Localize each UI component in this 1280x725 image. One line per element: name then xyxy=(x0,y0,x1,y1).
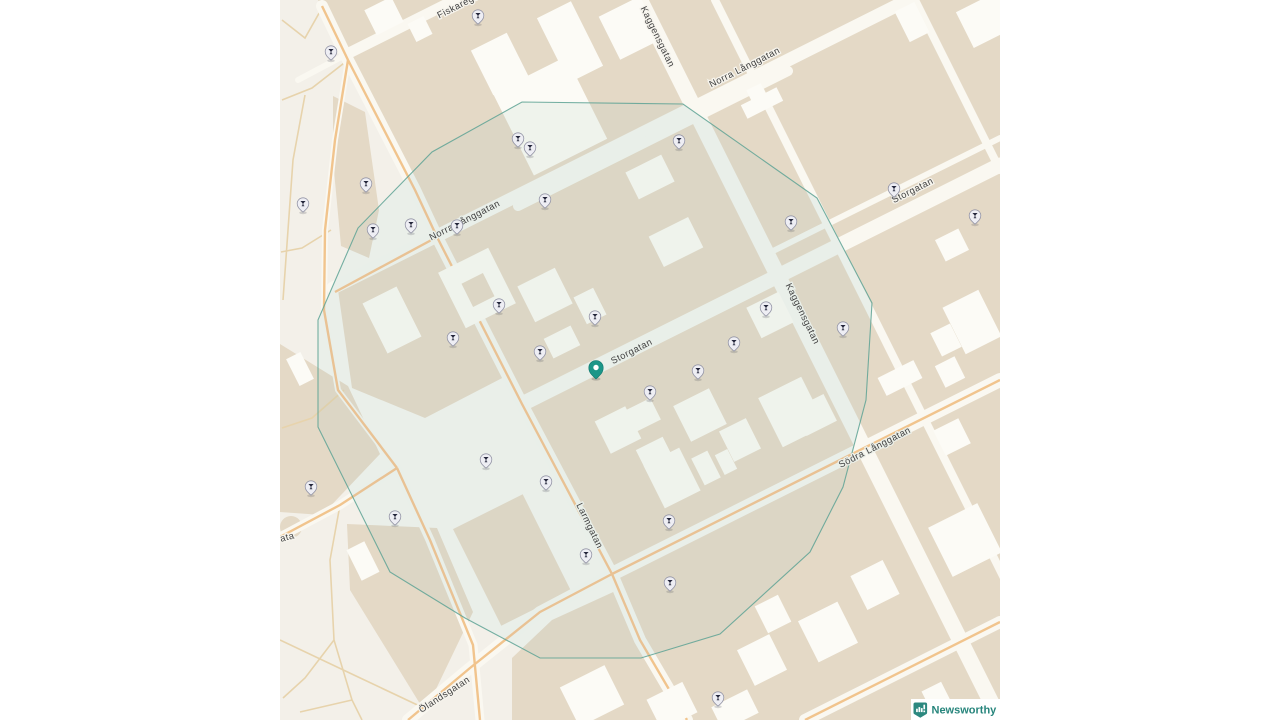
svg-text:Newsworthy: Newsworthy xyxy=(932,705,998,717)
